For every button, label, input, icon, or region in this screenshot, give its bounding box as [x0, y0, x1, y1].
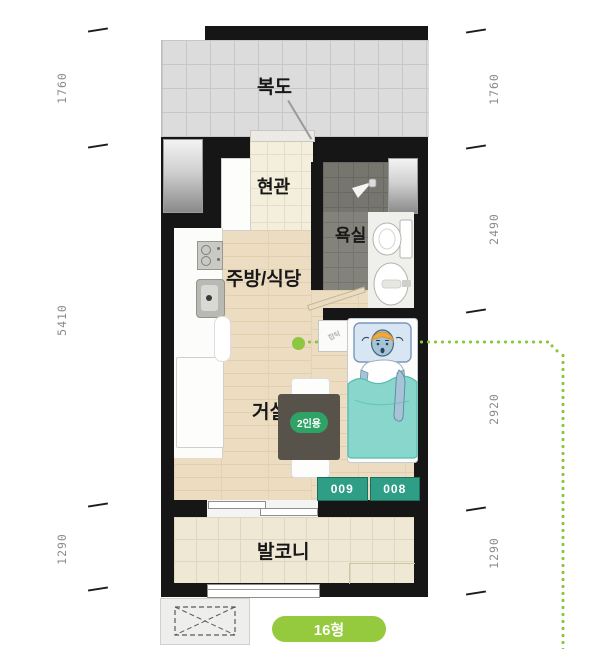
dim-tick	[466, 590, 486, 595]
entrance-label: 현관	[257, 173, 290, 199]
balcony-sliding-door	[207, 500, 318, 517]
nightstand: 협탁	[318, 320, 350, 352]
dim-tick	[88, 586, 108, 591]
dim-right-2920: 2920	[487, 385, 501, 433]
kitchen-wardrobe	[176, 357, 224, 448]
unit-badge-008: 008	[370, 477, 421, 501]
washbasin-icon	[372, 260, 414, 308]
table-capacity-badge: 2인용	[290, 412, 328, 433]
dim-left-1290: 1290	[55, 525, 69, 573]
entrance-door-threshold	[250, 130, 315, 142]
counter-end-cap	[214, 316, 231, 362]
dim-tick	[466, 144, 486, 149]
left-duct-shaft	[163, 139, 203, 213]
toilet-icon	[370, 218, 414, 260]
table-capacity-text: 2인용	[297, 415, 321, 430]
wall-left	[161, 230, 174, 595]
type-badge-text: 16형	[314, 619, 345, 640]
dim-tick	[88, 27, 108, 32]
corridor-area	[161, 40, 429, 137]
dim-tick	[466, 506, 486, 511]
dim-right-1760: 1760	[487, 65, 501, 113]
bathroom-label: 욕실	[335, 221, 366, 246]
entrance-closet	[221, 158, 251, 231]
type-badge: 16형	[272, 616, 386, 642]
chair-bottom	[291, 458, 330, 478]
dim-right-2490: 2490	[487, 205, 501, 253]
shower-icon	[348, 176, 378, 204]
dim-tick	[88, 502, 108, 507]
balcony-label: 발코니	[257, 537, 309, 564]
dotted-guide-vertical	[561, 352, 565, 649]
green-dot-marker	[292, 337, 305, 350]
cooktop-icon	[197, 241, 223, 270]
dim-left-5410: 5410	[55, 296, 69, 344]
dotted-guide-corner	[548, 342, 561, 355]
wall-bathroom-left	[311, 162, 323, 290]
balcony-step-line	[349, 563, 415, 584]
corridor-label: 복도	[257, 72, 292, 99]
dim-tick	[466, 308, 486, 313]
balcony-window	[207, 584, 320, 598]
kitchen-label: 주방/식당	[226, 264, 301, 291]
ac-outdoor-unit-icon	[160, 598, 250, 645]
unit-number-badges: 009 008	[317, 477, 420, 501]
unit-badge-009: 009	[317, 477, 368, 501]
floor-plan: 복도 현관 욕실 주방/식당	[0, 0, 600, 649]
right-duct-shaft	[388, 158, 418, 214]
nightstand-label: 협탁	[326, 329, 342, 344]
top-wall	[205, 26, 428, 40]
dim-left-1760: 1760	[55, 64, 69, 112]
dim-right-1290: 1290	[487, 529, 501, 577]
bed-person-illustration	[347, 318, 418, 463]
dim-tick	[88, 143, 108, 148]
kitchen-sink-icon	[196, 279, 225, 318]
dim-tick	[466, 28, 486, 33]
